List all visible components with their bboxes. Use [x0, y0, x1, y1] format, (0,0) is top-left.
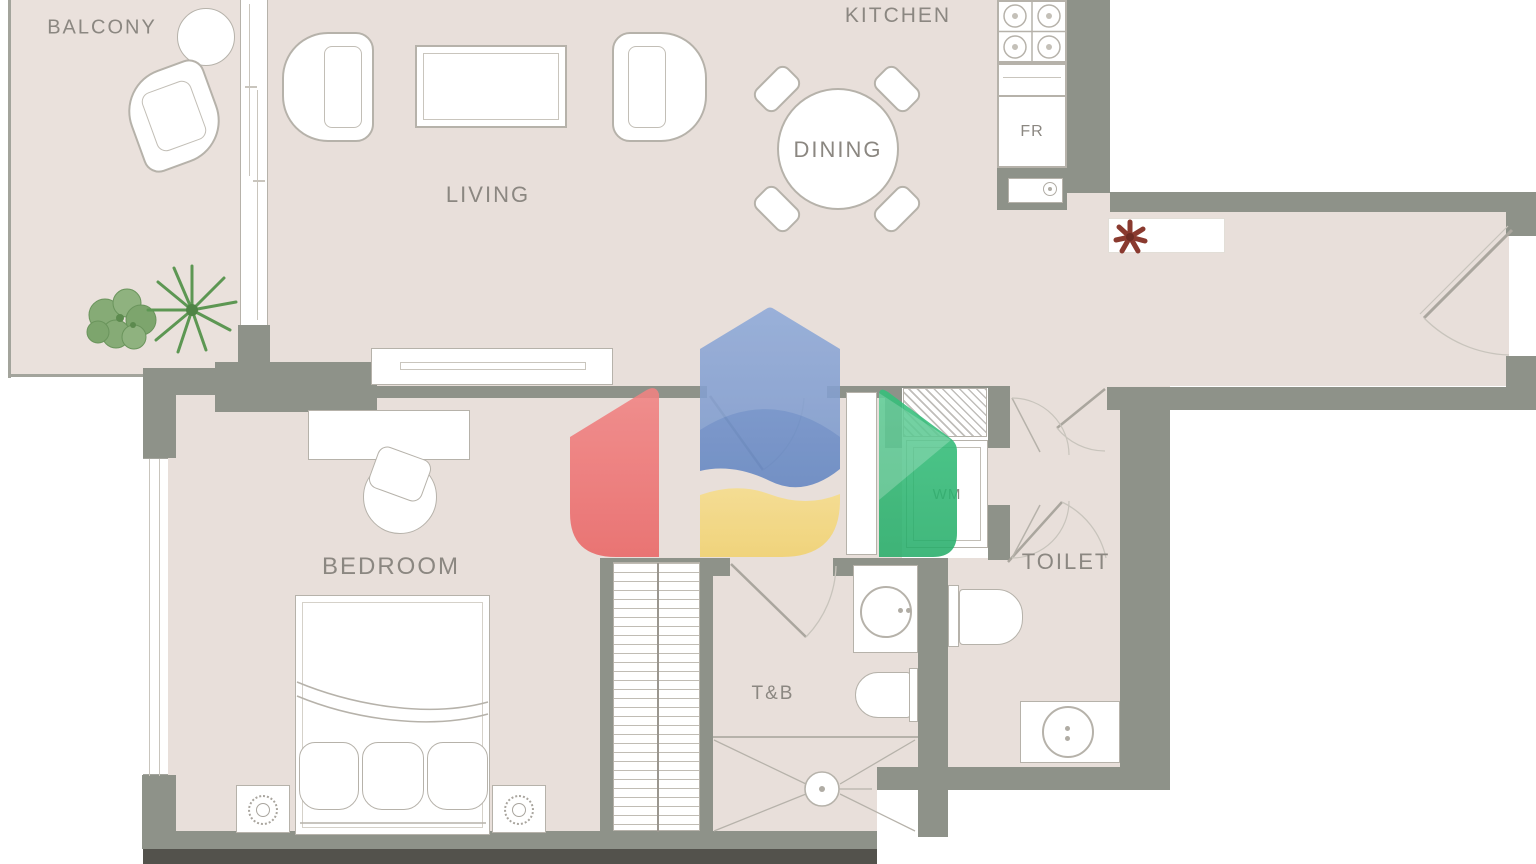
fridge: FR: [997, 95, 1067, 168]
wall-toilet-right: [1120, 387, 1170, 790]
wall-wardrobe-left: [600, 558, 613, 848]
kitchen-sink: [1008, 178, 1063, 203]
wall-corridor-bottom: [1107, 387, 1536, 410]
washer-label: WM: [933, 486, 962, 503]
wall-bedroom-left-bottom: [142, 775, 176, 849]
wall-entry-jamb-top: [1506, 212, 1536, 236]
balcony-rail-left: [8, 0, 11, 378]
room-label-living: LIVING: [446, 182, 530, 208]
fridge-label: FR: [1020, 123, 1043, 141]
nightstand-right: [492, 785, 546, 833]
room-label-balcony: BALCONY: [47, 17, 157, 40]
wall-wardrobe-right: [700, 558, 713, 848]
bedroom-window: [143, 458, 168, 775]
room-label-bedroom: BEDROOM: [322, 553, 460, 581]
entry-rug: [1108, 218, 1225, 253]
tb-toilet-bowl: [855, 672, 911, 718]
balcony-slider: [240, 0, 268, 325]
nightstand-left: [236, 785, 290, 833]
bed-pillow: [427, 742, 488, 810]
wall-living-bedroom-block: [215, 362, 377, 412]
tb-toilet-tank: [909, 668, 918, 722]
floorplan: FR: [0, 0, 1536, 864]
bed-pillow: [362, 742, 424, 810]
toilet-tank: [948, 585, 959, 647]
wall-top-right: [1110, 192, 1536, 212]
tb-sink-counter: [853, 565, 918, 653]
toilet-bowl: [959, 589, 1023, 645]
wardrobe: [613, 562, 700, 831]
stove: [997, 0, 1067, 63]
room-label-tb: T&B: [752, 683, 795, 705]
wall-wm-post-left: [885, 386, 902, 448]
slider-end-block: [238, 325, 270, 365]
room-label-toilet: TOILET: [1022, 549, 1111, 575]
wm-bifold-panel: [846, 392, 877, 555]
wall-wm-post-right-top: [988, 386, 1010, 448]
wall-hall-top-left: [377, 386, 707, 398]
wall-bottom-darkbar: [143, 849, 877, 864]
wall-entry-jamb-bottom: [1506, 356, 1536, 387]
wall-kitchen-side: [1067, 0, 1110, 193]
wall-bedroom-bottom: [143, 831, 877, 849]
balcony-table: [177, 8, 235, 66]
shower-divider: [713, 736, 918, 738]
armchair-left: [282, 32, 374, 142]
washing-machine: WM: [906, 440, 988, 548]
bed-pillow: [299, 742, 359, 810]
wall-wm-post-right-bottom: [988, 505, 1010, 560]
wall-tb-toilet-column: [918, 560, 948, 837]
armchair-right: [612, 32, 707, 142]
room-label-dining: DINING: [794, 137, 883, 163]
tv-console: [371, 348, 613, 385]
wall-balcony-corner-v: [143, 368, 176, 458]
kitchen-counter: [997, 63, 1067, 97]
entry-threshold: [1509, 236, 1536, 356]
room-label-kitchen: KITCHEN: [845, 4, 951, 28]
outside-patch-bottom: [877, 790, 1536, 864]
toilet-basin-counter: [1020, 701, 1120, 763]
dryer-unit: [903, 388, 987, 437]
coffee-table: [415, 45, 567, 128]
